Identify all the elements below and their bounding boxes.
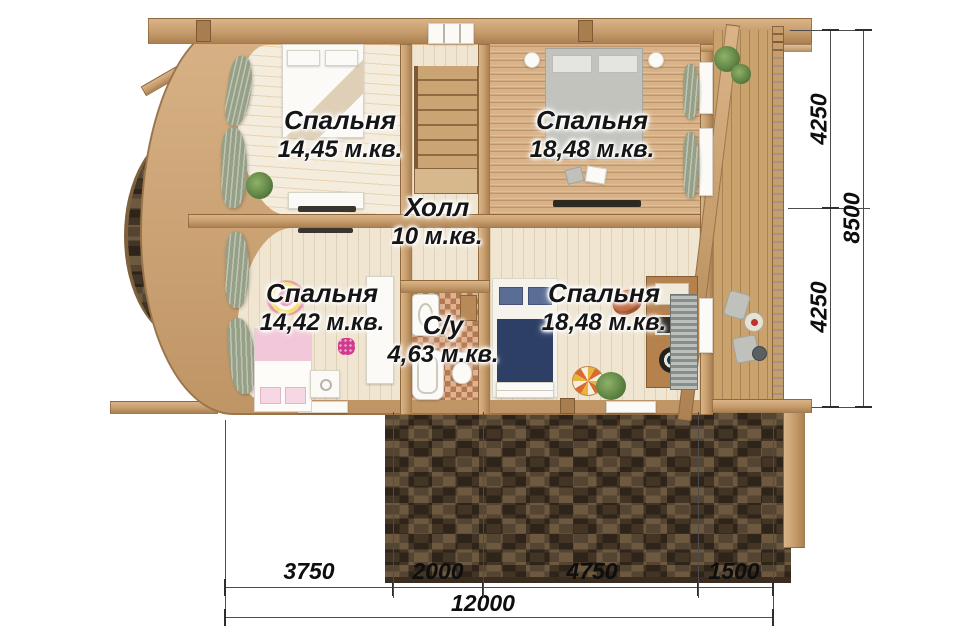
room-name: Холл — [391, 192, 482, 223]
tick — [822, 29, 839, 31]
nightstand-lamp-left — [524, 52, 540, 68]
curtain-top-left-2 — [221, 128, 247, 208]
ext-line-bottom-2 — [393, 412, 394, 598]
window-top — [428, 23, 474, 44]
balcony-table — [744, 312, 764, 332]
room-area: 4,63 м.кв. — [387, 341, 498, 369]
room-name: С/у — [387, 310, 498, 341]
label-bedroom-top-right: Спальня 18,48 м.кв. — [530, 105, 654, 164]
tick — [772, 609, 774, 626]
bed-steps — [496, 382, 554, 398]
room-area: 14,42 м.кв. — [260, 309, 384, 337]
plant-bottom-right — [596, 372, 626, 400]
dim-line-right-inner — [830, 30, 831, 408]
pillow — [499, 287, 523, 305]
tick — [224, 609, 226, 626]
room-area: 18,48 м.кв. — [542, 309, 666, 337]
pillow — [598, 55, 638, 73]
window-right-1 — [699, 62, 713, 114]
tick — [224, 579, 226, 596]
lower-roof-side-strip — [783, 412, 805, 548]
floor-plan-canvas: Спальня 14,45 м.кв. Спальня 18,48 м.кв. … — [0, 0, 960, 640]
room-area: 14,45 м.кв. — [278, 136, 402, 164]
dresser-bottom-left — [310, 370, 340, 398]
table-plate — [751, 319, 758, 326]
window-bottom-2 — [606, 401, 656, 413]
post-top-2 — [578, 20, 593, 42]
nightstand-lamp-right — [648, 52, 664, 68]
plant-top-left — [246, 172, 273, 199]
bed-bottom-left — [254, 328, 312, 412]
label-bedroom-bottom-right: Спальня 18,48 м.кв. — [542, 278, 666, 337]
curtain-bottom-left-1 — [225, 232, 249, 308]
window-right-2 — [699, 128, 713, 196]
magazines — [585, 166, 607, 185]
pillow — [552, 55, 592, 73]
room-name: Спальня — [260, 278, 384, 309]
label-hall: Холл 10 м.кв. — [391, 192, 482, 251]
dim-line-bottom-outer — [225, 617, 774, 618]
room-name: Спальня — [542, 278, 666, 309]
tick — [772, 579, 774, 596]
dim-bottom-4: 1500 — [708, 558, 759, 585]
wall-bathroom-top — [400, 280, 490, 293]
dim-bottom-3: 4750 — [566, 558, 617, 585]
ext-line-bottom-4 — [698, 412, 699, 598]
dim-right-top: 4250 — [806, 93, 833, 144]
post-top-1 — [196, 20, 211, 42]
dresser-door — [320, 379, 332, 391]
pillow — [287, 50, 320, 66]
dim-bottom-1: 3750 — [283, 558, 334, 585]
post-bottom-1 — [560, 398, 575, 414]
pillow — [285, 387, 306, 404]
room-name: Спальня — [530, 105, 654, 136]
room-name: Спальня — [278, 105, 402, 136]
balcony-plant-2 — [731, 64, 751, 84]
dim-line-bottom-inner — [225, 587, 774, 588]
balcony-pot — [752, 346, 767, 361]
ext-line-bottom-3 — [483, 412, 484, 598]
tick — [855, 406, 872, 408]
tick — [822, 207, 839, 209]
tv-top-left — [298, 206, 356, 212]
laundry-basket — [338, 338, 355, 355]
dim-right-total: 8500 — [839, 192, 866, 243]
louver-unit — [670, 294, 698, 390]
curtain-right-1 — [683, 64, 699, 119]
label-bedroom-bottom-left: Спальня 14,42 м.кв. — [260, 278, 384, 337]
balcony-bottom-beam — [712, 399, 812, 413]
staircase — [414, 66, 478, 168]
room-area: 18,48 м.кв. — [530, 136, 654, 164]
tick — [822, 406, 839, 408]
tv-bottom-left — [298, 228, 353, 233]
room-area: 10 м.кв. — [391, 223, 482, 251]
pillow — [260, 387, 281, 404]
pillow — [325, 50, 358, 66]
staircase-landing — [414, 168, 478, 194]
dim-right-bottom: 4250 — [806, 281, 833, 332]
tick — [855, 29, 872, 31]
curtain-right-2 — [683, 132, 699, 198]
window-right-3 — [699, 298, 713, 353]
label-bathroom: С/у 4,63 м.кв. — [387, 310, 498, 369]
dim-bottom-2: 2000 — [412, 558, 463, 585]
tv-top-right — [553, 200, 641, 207]
balcony-railing — [772, 26, 784, 412]
label-bedroom-top-left: Спальня 14,45 м.кв. — [278, 105, 402, 164]
